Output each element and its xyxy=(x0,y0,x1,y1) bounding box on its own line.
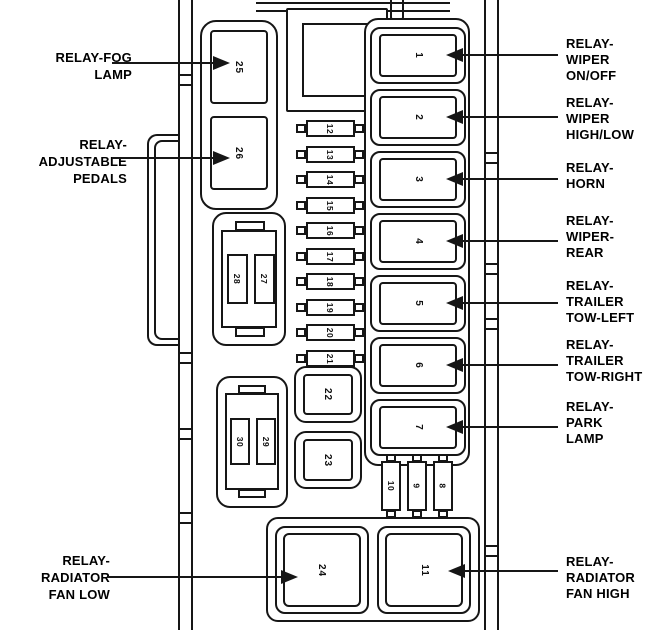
arrow-to-relay-7 xyxy=(446,420,558,434)
rail-tick xyxy=(484,545,499,547)
arrow-to-relay-4 xyxy=(446,234,558,248)
relay-7-number: 7 xyxy=(413,424,424,431)
fuse-28-number: 28 xyxy=(233,274,243,284)
label-line: FAN LOW xyxy=(0,586,110,603)
label-line: RADIATOR xyxy=(0,569,110,586)
fuse-tab xyxy=(296,226,306,235)
label-relay-radiator-fan-low: RELAY- RADIATOR FAN LOW xyxy=(0,552,110,603)
fuse-20-number: 20 xyxy=(326,327,336,337)
fuse-15: 15 xyxy=(306,197,355,214)
label-line: TRAILER xyxy=(566,353,658,369)
label-line: TOW-RIGHT xyxy=(566,369,658,385)
fuse-18-number: 18 xyxy=(326,276,336,286)
fuse-28: 28 xyxy=(227,254,248,304)
fuse-16: 16 xyxy=(306,222,355,239)
fuse-13-number: 13 xyxy=(326,149,336,159)
rail-tick xyxy=(178,512,193,514)
fuse-16-number: 16 xyxy=(326,225,336,235)
fuse-19-number: 19 xyxy=(326,302,336,312)
arrow-to-relay-2 xyxy=(446,110,558,124)
connector-27-28-bottom-tab xyxy=(235,327,265,337)
rail-tick xyxy=(484,162,499,164)
label-line: RELAY- xyxy=(566,399,658,415)
fuse-tab xyxy=(354,277,364,286)
label-line: PARK xyxy=(566,415,658,431)
fuse-19: 19 xyxy=(306,299,355,316)
label-line: RELAY- xyxy=(5,136,127,153)
fuse-9: 9 xyxy=(407,461,427,511)
label-line: RELAY- xyxy=(566,278,658,294)
arrow-to-relay-25 xyxy=(112,56,230,70)
rail-tick xyxy=(178,522,193,524)
label-relay-adjustable-pedals: RELAY- ADJUSTABLE PEDALS xyxy=(5,136,127,187)
arrow-to-relay-6 xyxy=(446,358,558,372)
arrow-to-relay-3 xyxy=(446,172,558,186)
fuse-tab xyxy=(296,277,306,286)
rail-tick xyxy=(178,74,193,76)
label-relay-trailer-tow-right: RELAY- TRAILER TOW-RIGHT xyxy=(566,337,658,385)
rail-tick xyxy=(178,428,193,430)
left-mount-bracket-inner xyxy=(154,140,179,340)
relay-22-number: 22 xyxy=(323,388,334,401)
fuse-tab xyxy=(354,252,364,261)
fuse-tab xyxy=(354,201,364,210)
fuse-tab xyxy=(296,252,306,261)
arrow-to-relay-11 xyxy=(448,564,558,578)
arrow-to-relay-5 xyxy=(446,296,558,310)
label-relay-trailer-tow-left: RELAY- TRAILER TOW-LEFT xyxy=(566,278,658,326)
relay-23-socket: 23 xyxy=(303,439,353,481)
fuse-tab xyxy=(354,303,364,312)
rail-tick xyxy=(484,555,499,557)
label-line: LAMP xyxy=(566,431,658,447)
arrow-to-relay-24 xyxy=(108,570,298,584)
fuse-tab xyxy=(354,354,364,363)
rail-tick xyxy=(484,328,499,330)
relay-3-number: 3 xyxy=(413,176,424,183)
relay-6-number: 6 xyxy=(413,362,424,369)
fuse-tab xyxy=(296,328,306,337)
connector-29-30-bottom-tab xyxy=(238,489,266,498)
label-line: REAR xyxy=(566,245,658,261)
fuse-10-number: 10 xyxy=(386,481,396,491)
fuse-21: 21 xyxy=(306,350,355,367)
fuse-tab xyxy=(354,328,364,337)
fuse-8-number: 8 xyxy=(438,483,448,488)
rail-tick xyxy=(178,438,193,440)
relay-25-number: 25 xyxy=(234,60,245,73)
rail-tick xyxy=(178,84,193,86)
rail-tick xyxy=(484,263,499,265)
fuse-18: 18 xyxy=(306,273,355,290)
label-line: WIPER xyxy=(566,52,658,68)
fuse-30: 30 xyxy=(230,418,250,465)
fuse-20: 20 xyxy=(306,324,355,341)
fuse-8: 8 xyxy=(433,461,453,511)
label-line: RELAY- xyxy=(0,552,110,569)
fuse-17: 17 xyxy=(306,248,355,265)
fuse-15-number: 15 xyxy=(326,200,336,210)
fuse-17-number: 17 xyxy=(326,251,336,261)
label-line: HIGH/LOW xyxy=(566,127,658,143)
label-line: RELAY- xyxy=(566,36,658,52)
label-relay-wiper-on-off: RELAY- WIPER ON/OFF xyxy=(566,36,658,84)
fuse-29-number: 29 xyxy=(261,436,271,446)
fuse-box-diagram: 25 26 12 13 14 15 16 17 18 19 20 21 28 2… xyxy=(0,0,660,630)
fuse-tab xyxy=(296,175,306,184)
label-relay-park-lamp: RELAY- PARK LAMP xyxy=(566,399,658,447)
label-line: HORN xyxy=(566,176,658,192)
label-line: RELAY- xyxy=(566,337,658,353)
label-line: WIPER- xyxy=(566,229,658,245)
fuse-9-number: 9 xyxy=(412,483,422,488)
fuse-tab xyxy=(296,354,306,363)
rail-tick xyxy=(484,273,499,275)
rail-tick xyxy=(484,318,499,320)
relay-1-number: 1 xyxy=(413,52,424,59)
relay-22-socket: 22 xyxy=(303,374,353,415)
right-rail-outer-line xyxy=(497,0,499,630)
fuse-tab xyxy=(354,175,364,184)
arrow-to-relay-26 xyxy=(112,151,230,165)
relay-23-number: 23 xyxy=(323,453,334,466)
rail-tick xyxy=(178,352,193,354)
label-line: RELAY- xyxy=(566,554,658,570)
label-line: TRAILER xyxy=(566,294,658,310)
fuse-13: 13 xyxy=(306,146,355,163)
fuse-12: 12 xyxy=(306,120,355,137)
fuse-tab xyxy=(296,303,306,312)
label-line: ADJUSTABLE xyxy=(5,153,127,170)
fuse-29: 29 xyxy=(256,418,276,465)
label-line: RADIATOR xyxy=(566,570,658,586)
relay-5-number: 5 xyxy=(413,300,424,307)
fuse-27-number: 27 xyxy=(260,274,270,284)
label-relay-horn: RELAY- HORN xyxy=(566,160,658,192)
label-line: WIPER xyxy=(566,111,658,127)
fuse-tab xyxy=(296,124,306,133)
relay-2-number: 2 xyxy=(413,114,424,121)
label-relay-wiper-rear: RELAY- WIPER- REAR xyxy=(566,213,658,261)
fuse-tab xyxy=(354,226,364,235)
fuse-14-number: 14 xyxy=(326,174,336,184)
label-line: RELAY- xyxy=(566,213,658,229)
fuse-21-number: 21 xyxy=(326,353,336,363)
label-line: FAN HIGH xyxy=(566,586,658,602)
fuse-tab xyxy=(354,150,364,159)
relay-26-number: 26 xyxy=(234,146,245,159)
rail-tick xyxy=(484,152,499,154)
label-line: RELAY- xyxy=(566,95,658,111)
left-rail-inner-line xyxy=(191,0,193,630)
right-rail-inner-line xyxy=(484,0,486,630)
fuse-tab xyxy=(296,150,306,159)
fuse-27: 27 xyxy=(254,254,275,304)
label-relay-radiator-fan-high: RELAY- RADIATOR FAN HIGH xyxy=(566,554,658,602)
relay-11-number: 11 xyxy=(418,564,429,577)
fuse-tab xyxy=(296,201,306,210)
label-line: ON/OFF xyxy=(566,68,658,84)
label-relay-wiper-high-low: RELAY- WIPER HIGH/LOW xyxy=(566,95,658,143)
label-line: RELAY- xyxy=(566,160,658,176)
fuse-tab xyxy=(354,124,364,133)
arrow-to-relay-1 xyxy=(446,48,558,62)
relay-24-number: 24 xyxy=(317,563,328,576)
relay-4-number: 4 xyxy=(413,238,424,245)
label-line: PEDALS xyxy=(5,170,127,187)
fuse-12-number: 12 xyxy=(326,123,336,133)
label-line: TOW-LEFT xyxy=(566,310,658,326)
rail-tick xyxy=(178,362,193,364)
fuse-10: 10 xyxy=(381,461,401,511)
fuse-14: 14 xyxy=(306,171,355,188)
fuse-30-number: 30 xyxy=(235,436,245,446)
